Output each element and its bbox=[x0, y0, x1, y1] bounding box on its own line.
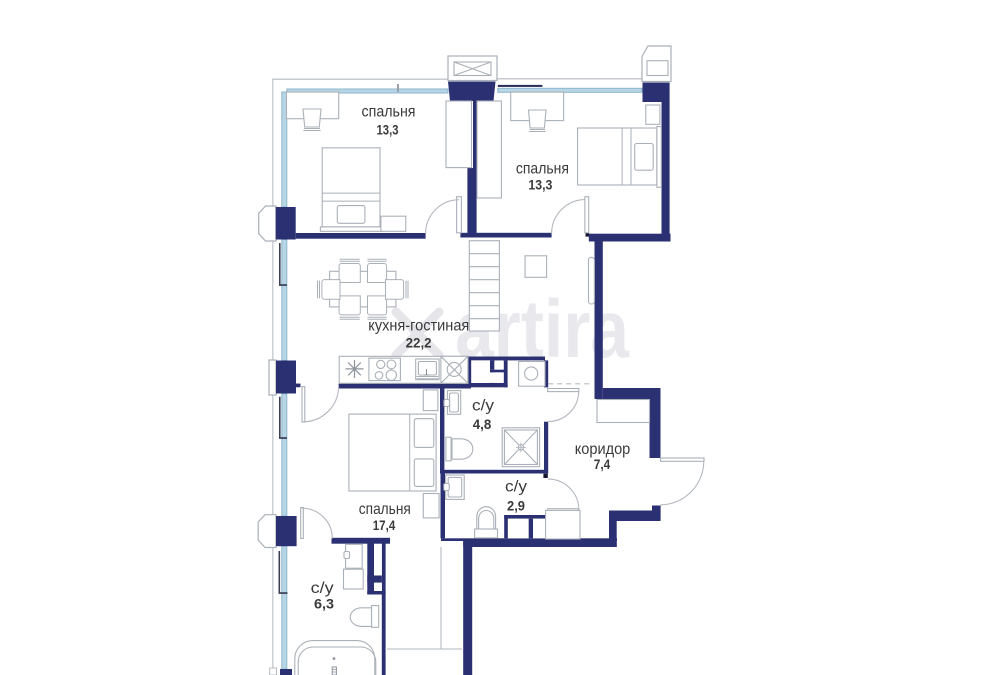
svg-text:спальня: спальня bbox=[359, 501, 411, 518]
svg-text:17,4: 17,4 bbox=[373, 517, 396, 533]
svg-text:4,8: 4,8 bbox=[473, 416, 492, 432]
svg-text:с/у: с/у bbox=[472, 398, 494, 415]
svg-text:2,9: 2,9 bbox=[507, 498, 525, 514]
svg-text:кухня-гостиная: кухня-гостиная bbox=[368, 318, 469, 335]
svg-text:с/у: с/у bbox=[505, 479, 527, 496]
svg-text:6,3: 6,3 bbox=[314, 596, 334, 612]
svg-text:с/у: с/у bbox=[311, 580, 334, 597]
svg-text:спальня: спальня bbox=[516, 161, 569, 178]
svg-text:13,3: 13,3 bbox=[377, 122, 399, 138]
svg-text:спальня: спальня bbox=[362, 104, 416, 121]
svg-text:22,2: 22,2 bbox=[406, 335, 432, 351]
svg-text:13,3: 13,3 bbox=[528, 177, 552, 193]
svg-text:7,4: 7,4 bbox=[594, 456, 611, 472]
